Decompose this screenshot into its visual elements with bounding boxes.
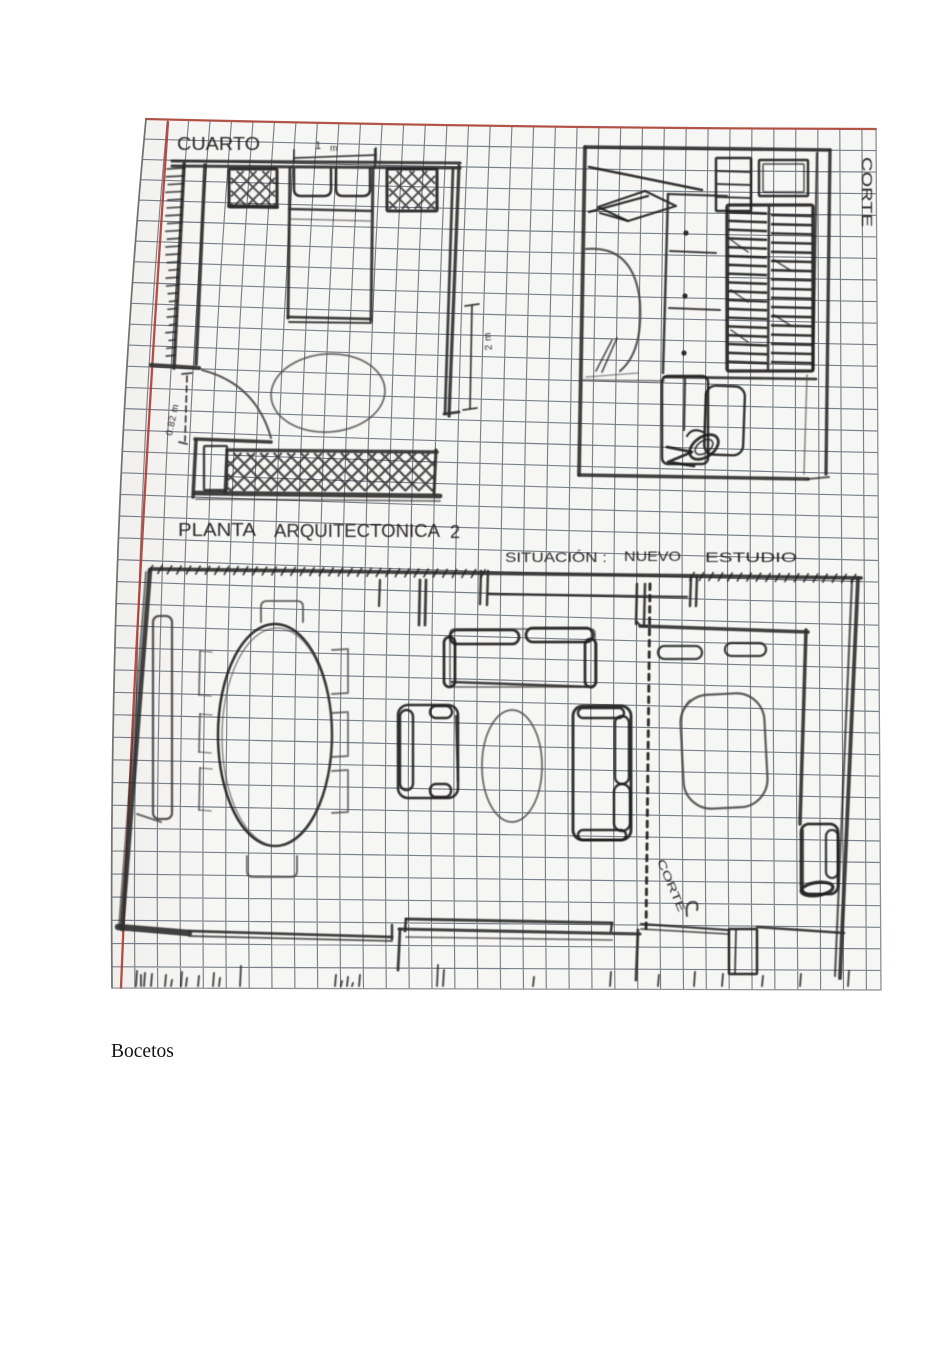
svg-text:CUARTO: CUARTO — [177, 134, 260, 154]
svg-text:ARQUITECTONICA: ARQUITECTONICA — [274, 521, 440, 541]
svg-text:1: 1 — [315, 140, 322, 152]
svg-text:2 m: 2 m — [482, 332, 495, 351]
svg-text:m: m — [330, 143, 339, 153]
svg-text:PLANTA: PLANTA — [178, 520, 256, 540]
svg-text:NUEVO: NUEVO — [624, 548, 681, 564]
svg-text:ESTUDIO: ESTUDIO — [705, 549, 797, 565]
svg-text:CORTE: CORTE — [858, 157, 874, 227]
svg-text:SITUACIÓN :: SITUACIÓN : — [505, 549, 607, 565]
svg-text:2: 2 — [450, 522, 460, 542]
